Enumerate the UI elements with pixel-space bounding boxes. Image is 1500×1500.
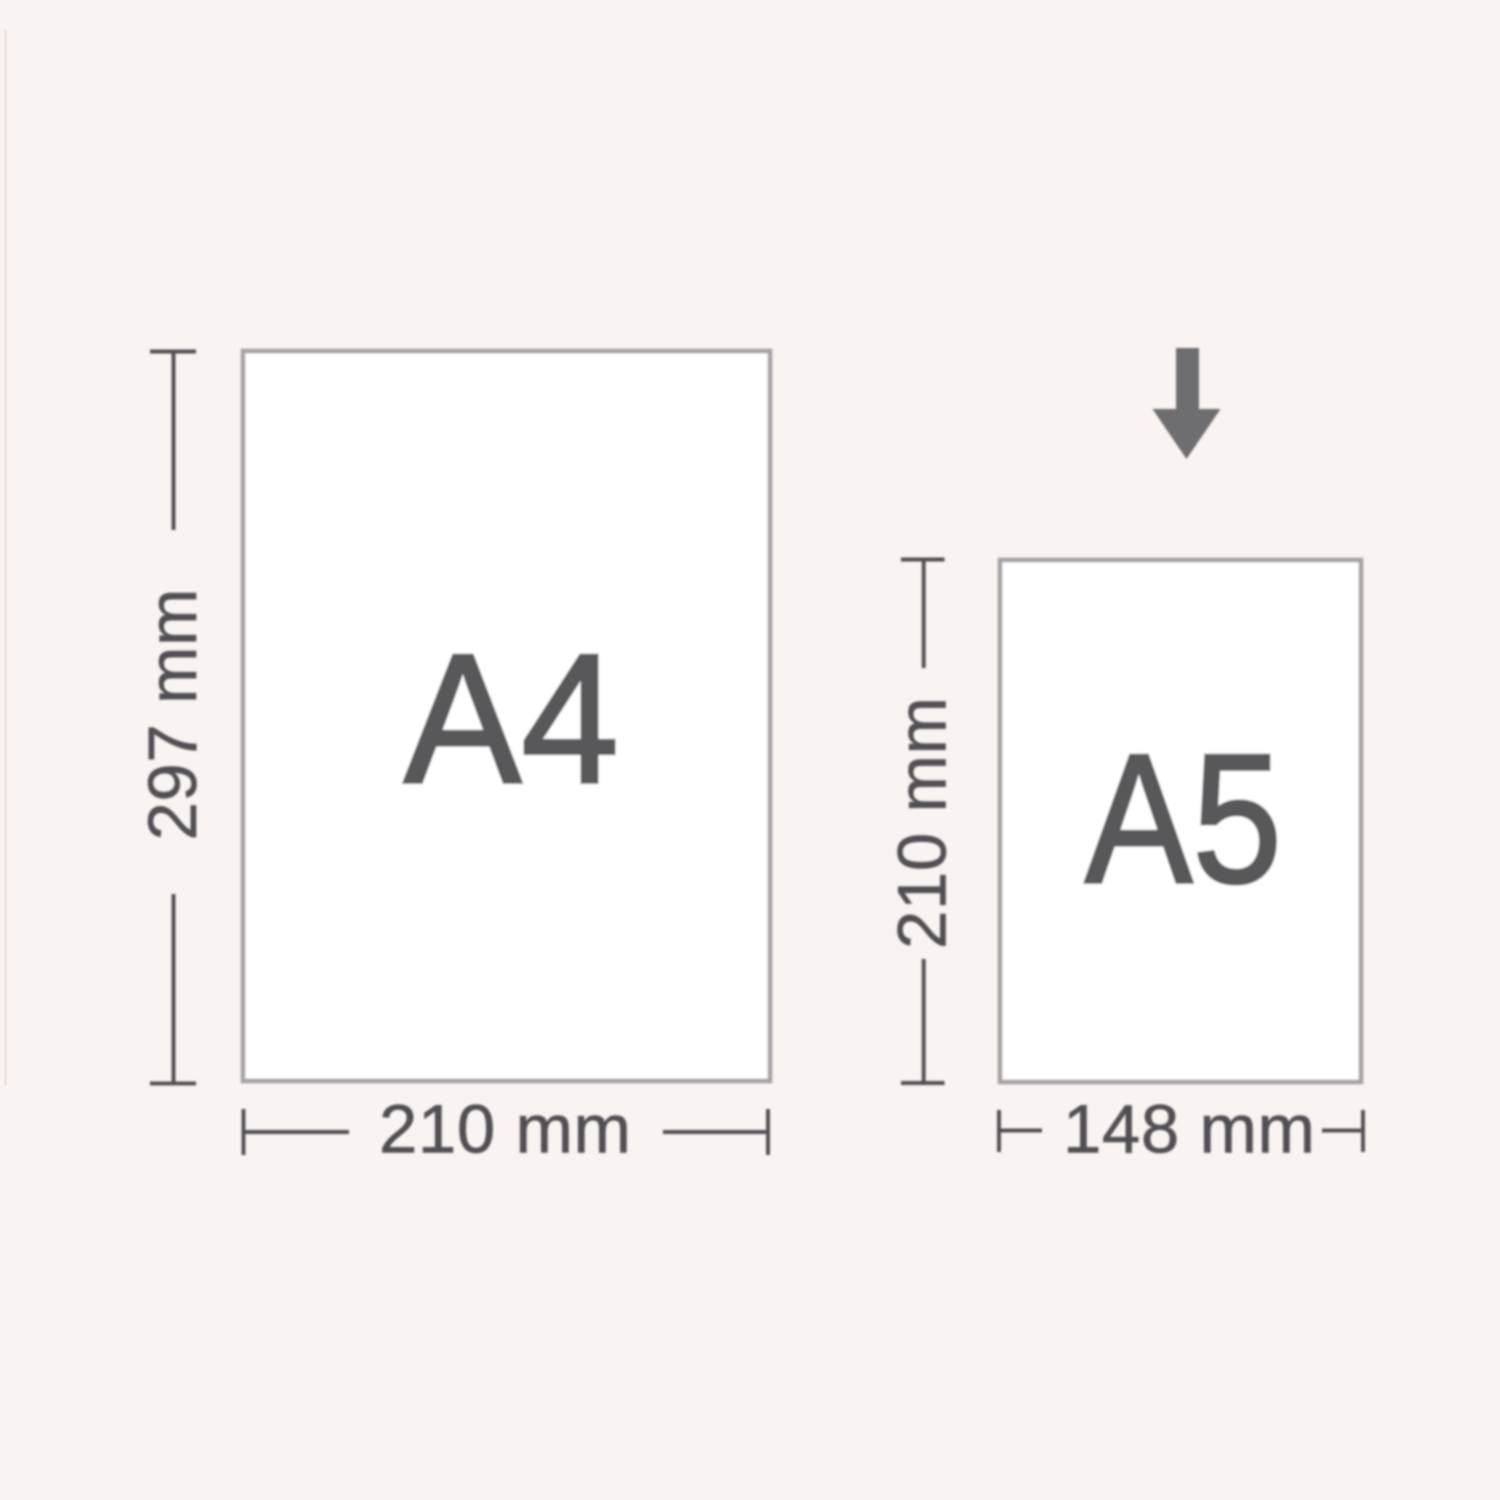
svg-text:A4: A4 xyxy=(404,615,619,821)
svg-text:210 mm: 210 mm xyxy=(884,697,961,949)
svg-text:A5: A5 xyxy=(1085,715,1282,921)
svg-text:297 mm: 297 mm xyxy=(134,589,211,841)
svg-text:210 mm: 210 mm xyxy=(379,1091,631,1168)
svg-text:148 mm: 148 mm xyxy=(1063,1091,1315,1168)
